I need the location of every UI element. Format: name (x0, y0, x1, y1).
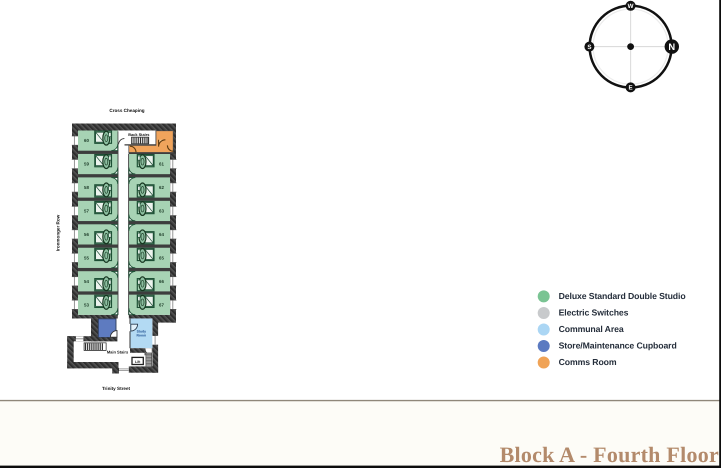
svg-text:58: 58 (84, 185, 89, 190)
svg-text:Trinity Street: Trinity Street (102, 386, 131, 391)
svg-text:Communal Area: Communal Area (559, 324, 624, 334)
svg-text:64: 64 (159, 232, 164, 237)
svg-text:53: 53 (84, 302, 89, 307)
svg-text:Comms Room: Comms Room (559, 357, 617, 367)
svg-text:Electric Switches: Electric Switches (559, 307, 629, 317)
svg-text:54: 54 (84, 279, 89, 284)
svg-text:S: S (587, 44, 591, 51)
svg-text:Cross Cheaping: Cross Cheaping (109, 108, 144, 113)
svg-text:Store/Maintenance Cupboard: Store/Maintenance Cupboard (559, 340, 677, 350)
svg-text:67: 67 (159, 302, 164, 307)
svg-text:65: 65 (159, 255, 164, 260)
svg-text:W: W (628, 3, 634, 10)
svg-text:59: 59 (84, 162, 89, 167)
svg-text:56: 56 (84, 232, 89, 237)
svg-text:60: 60 (84, 138, 89, 143)
svg-text:61: 61 (159, 162, 164, 167)
svg-text:Lift: Lift (135, 360, 141, 364)
svg-text:N: N (668, 41, 675, 52)
svg-text:Main Stairs: Main Stairs (107, 349, 129, 354)
svg-text:Back Stairs: Back Stairs (128, 132, 149, 137)
svg-text:Room: Room (136, 333, 146, 337)
svg-text:57: 57 (84, 209, 89, 214)
svg-text:55: 55 (84, 255, 89, 260)
svg-text:E: E (629, 85, 633, 92)
svg-text:66: 66 (159, 279, 164, 284)
svg-text:62: 62 (159, 185, 164, 190)
svg-text:63: 63 (159, 209, 164, 214)
svg-text:Block A - Fourth Floor: Block A - Fourth Floor (500, 442, 719, 467)
svg-text:Ironmonger Row: Ironmonger Row (56, 214, 61, 251)
svg-text:Deluxe Standard Double Studio: Deluxe Standard Double Studio (559, 291, 686, 301)
